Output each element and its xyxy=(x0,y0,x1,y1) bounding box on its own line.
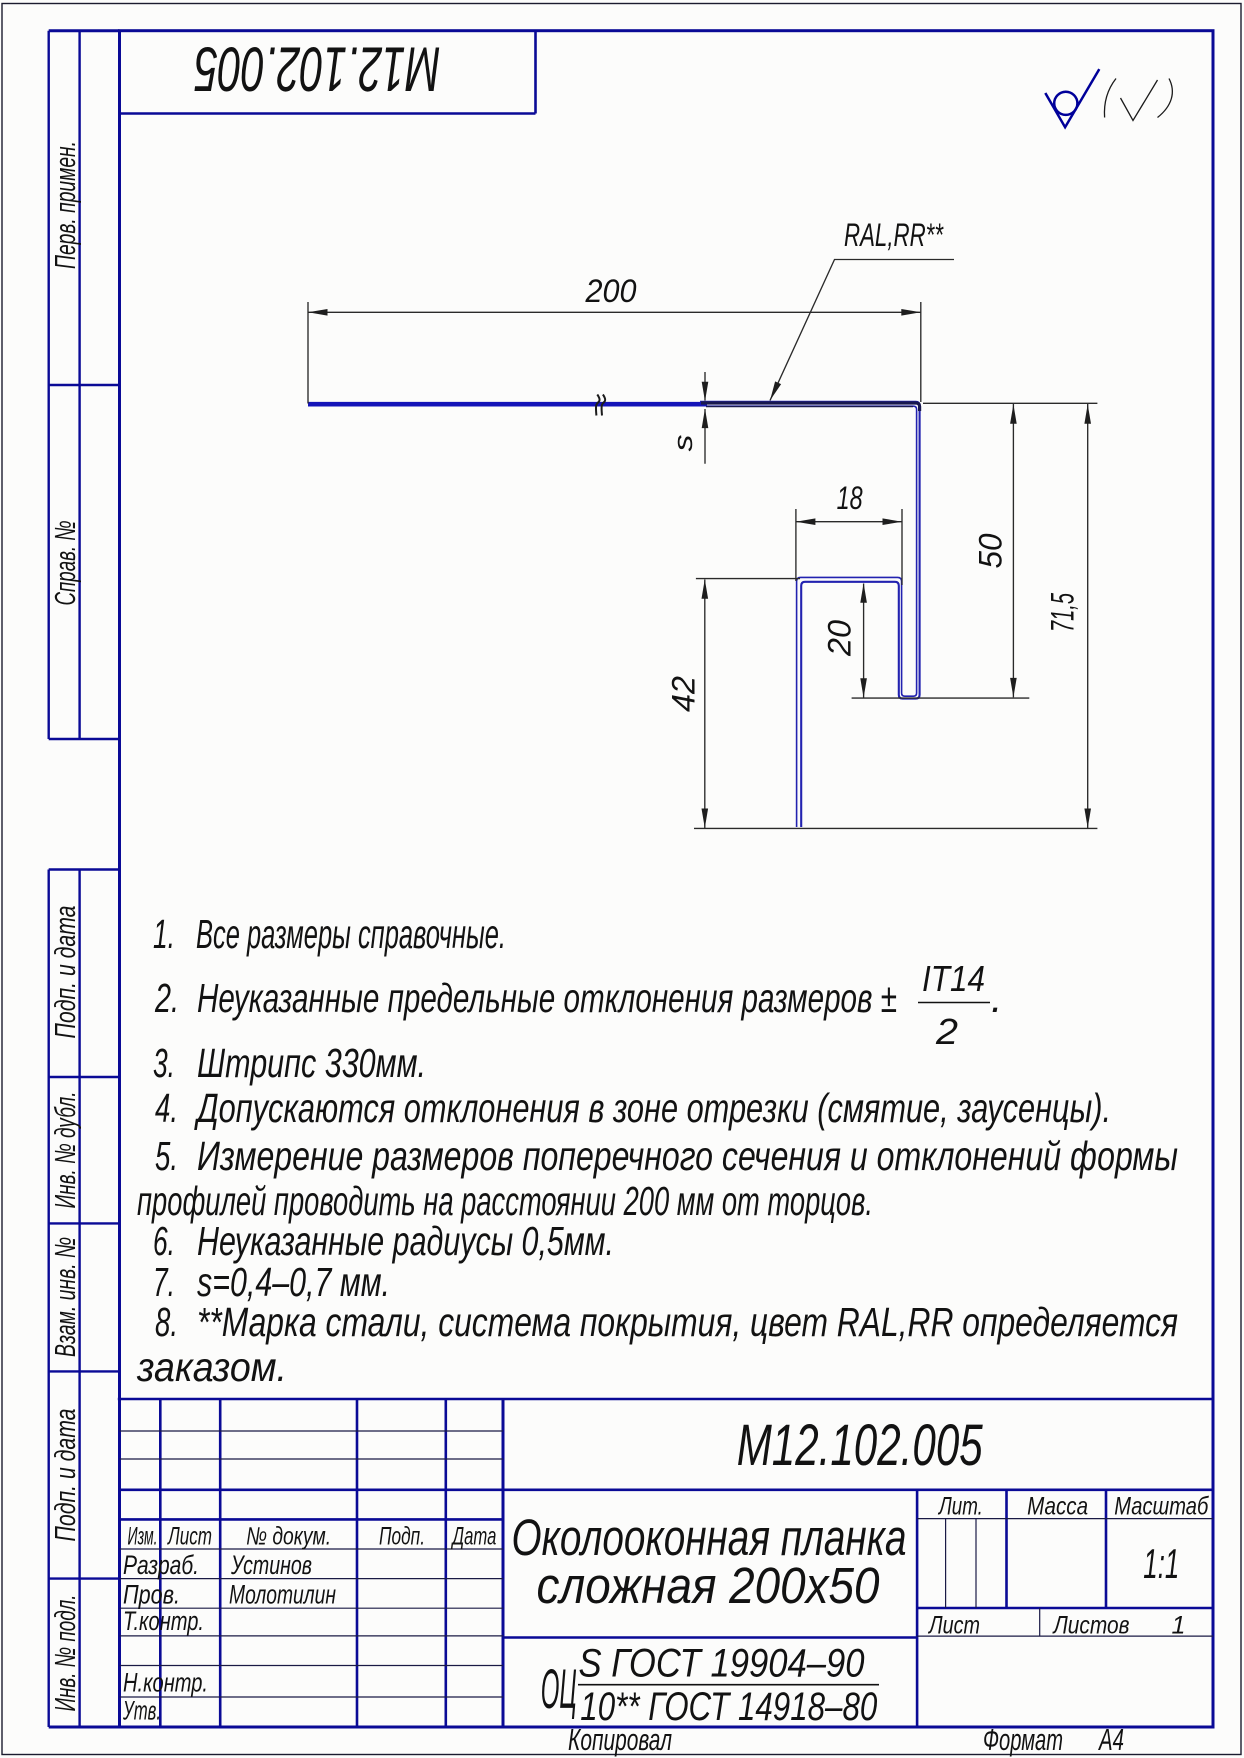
svg-text:М12.102.005: М12.102.005 xyxy=(194,34,441,104)
svg-text:Дата: Дата xyxy=(450,1523,496,1551)
svg-text:Инв. № дубл.: Инв. № дубл. xyxy=(50,1092,82,1209)
svg-text:8.: 8. xyxy=(155,1299,178,1345)
svg-text:Допускаются отклонения в зоне: Допускаются отклонения в зоне отрезки (с… xyxy=(194,1085,1111,1131)
svg-text:Неуказанные предельные отклоне: Неуказанные предельные отклонения размер… xyxy=(197,975,897,1021)
svg-text:Инв. № подл.: Инв. № подл. xyxy=(50,1595,82,1712)
svg-text:50: 50 xyxy=(973,534,1009,569)
svg-text:**Марка стали, система покрыти: **Марка стали, система покрытия, цвет RA… xyxy=(197,1299,1178,1345)
svg-text:Копировал: Копировал xyxy=(568,1722,672,1757)
svg-text:Перв. примен.: Перв. примен. xyxy=(50,141,82,269)
svg-text:Листов: Листов xyxy=(1052,1611,1130,1639)
svg-text:Утв.: Утв. xyxy=(122,1696,161,1726)
svg-text:Масштаб: Масштаб xyxy=(1114,1492,1209,1520)
svg-text:2.: 2. xyxy=(154,975,179,1021)
svg-text:18: 18 xyxy=(837,480,863,516)
svg-text:200: 200 xyxy=(585,273,637,309)
svg-text:20: 20 xyxy=(821,620,857,657)
svg-text:IT14: IT14 xyxy=(922,958,985,999)
svg-text:Т.контр.: Т.контр. xyxy=(123,1606,204,1636)
svg-text:s: s xyxy=(668,435,698,452)
svg-text:А4: А4 xyxy=(1098,1722,1124,1757)
svg-text:71,5: 71,5 xyxy=(1045,592,1081,632)
svg-text:4.: 4. xyxy=(155,1085,178,1131)
svg-text:Штрипс 330мм.: Штрипс 330мм. xyxy=(197,1040,426,1086)
svg-text:Изм.: Изм. xyxy=(128,1523,158,1551)
svg-text:сложная 200х50: сложная 200х50 xyxy=(537,1557,880,1614)
svg-text:Лит.: Лит. xyxy=(937,1492,983,1520)
svg-text:6.: 6. xyxy=(153,1218,175,1264)
svg-text:Неуказанные радиусы 0,5мм.: Неуказанные радиусы 0,5мм. xyxy=(197,1218,614,1264)
svg-text:3.: 3. xyxy=(153,1040,175,1086)
svg-text:1: 1 xyxy=(1172,1611,1186,1639)
svg-text:1.: 1. xyxy=(153,911,175,957)
svg-text:Молотилин: Молотилин xyxy=(229,1580,336,1610)
svg-text:5.: 5. xyxy=(155,1133,178,1179)
svg-text:Подп. и дата: Подп. и дата xyxy=(50,906,82,1039)
svg-text:Разраб.: Разраб. xyxy=(123,1550,199,1580)
svg-text:Подп. и дата: Подп. и дата xyxy=(50,1409,82,1542)
svg-text:Масса: Масса xyxy=(1027,1492,1088,1520)
svg-text:42: 42 xyxy=(666,676,702,712)
svg-text:RAL,RR**: RAL,RR** xyxy=(844,217,944,253)
svg-text:2: 2 xyxy=(935,1011,958,1052)
svg-text:М12.102.005: М12.102.005 xyxy=(737,1413,984,1478)
svg-text:ОЦ: ОЦ xyxy=(541,1657,577,1720)
svg-text:заказом.: заказом. xyxy=(136,1344,287,1390)
svg-text:Формат: Формат xyxy=(983,1722,1063,1757)
svg-text:Взам. инв. №: Взам. инв. № xyxy=(50,1237,82,1357)
svg-text:Лист: Лист xyxy=(927,1611,980,1639)
svg-text:№ докум.: № докум. xyxy=(246,1523,331,1551)
svg-text:S ГОСТ 19904–90: S ГОСТ 19904–90 xyxy=(579,1641,865,1685)
svg-text:Устинов: Устинов xyxy=(230,1550,312,1580)
svg-text:Измерение размеров поперечного: Измерение размеров поперечного сечения и… xyxy=(197,1133,1178,1179)
svg-text:Н.контр.: Н.контр. xyxy=(123,1668,208,1698)
svg-text:Все размеры справочные.: Все размеры справочные. xyxy=(196,911,506,957)
svg-text:Справ. №: Справ. № xyxy=(50,521,82,606)
svg-text:Лист: Лист xyxy=(167,1523,212,1551)
svg-text:Пров.: Пров. xyxy=(123,1580,180,1610)
svg-text:1:1: 1:1 xyxy=(1143,1540,1179,1587)
svg-text:.: . xyxy=(991,975,1002,1021)
svg-text:Подп.: Подп. xyxy=(379,1523,425,1551)
